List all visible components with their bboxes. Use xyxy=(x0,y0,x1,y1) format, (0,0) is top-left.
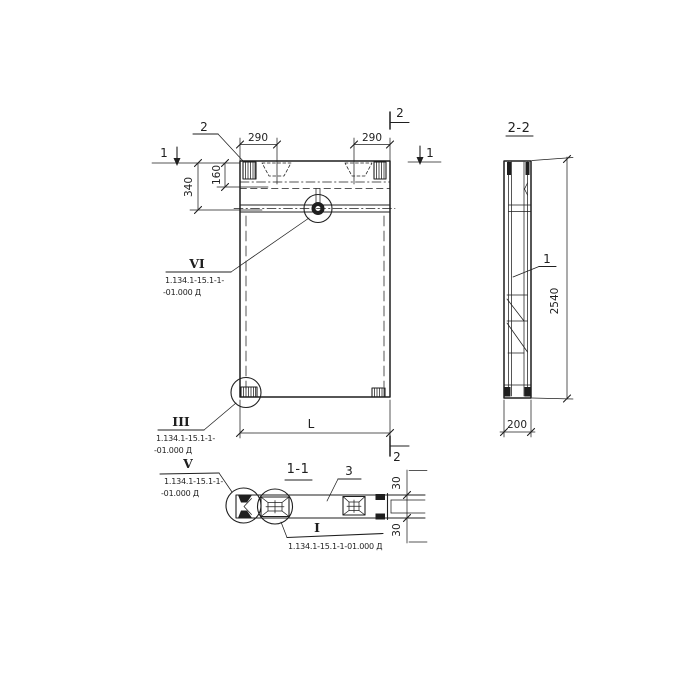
dim-length-label: L xyxy=(308,417,315,431)
leader-detail-2-label: 2 xyxy=(200,120,208,134)
callout-iii-doc2: -01.000 Д xyxy=(154,446,192,455)
svg-text:1-1: 1-1 xyxy=(287,462,310,477)
callout-i-label: I xyxy=(314,520,320,535)
section-2-2-body xyxy=(504,161,531,398)
view-marker-1-right-label: 1 xyxy=(426,146,434,160)
front-view: 290 290 160 340 L xyxy=(152,106,441,464)
leader-detail-1: 1 xyxy=(513,252,556,277)
section-2-2: 2-2 1 2540 xyxy=(500,121,573,437)
callout-v: V 1.134.1-15.1-1- -01.000 Д xyxy=(160,456,232,498)
dim-200: 200 xyxy=(500,400,535,437)
dim-2540-label: 2540 xyxy=(549,288,561,315)
svg-text:2-2: 2-2 xyxy=(508,121,531,136)
dim-2540: 2540 xyxy=(532,156,573,403)
view-marker-1-left-label: 1 xyxy=(160,146,168,160)
section-1-1: 1-1 xyxy=(160,456,427,551)
callout-vi: VI 1.134.1-15.1-1- -01.000 Д xyxy=(163,218,309,297)
view-marker-1-right: 1 xyxy=(408,146,441,165)
dim-30-pair: 30 30 xyxy=(391,470,427,543)
technical-drawing: 290 290 160 340 L xyxy=(0,0,700,700)
section-marker-2-bottom: 2 xyxy=(390,436,409,464)
dim-160-label: 160 xyxy=(211,165,223,185)
embed-plate-top-left-icon xyxy=(243,162,256,179)
callout-i: I 1.134.1-15.1-1-01.000 Д xyxy=(281,520,383,551)
leader-detail-2: 2 xyxy=(193,120,244,162)
callout-v-label: V xyxy=(182,456,193,471)
embed-plate-top-right-icon xyxy=(374,162,386,179)
callout-vi-doc1: 1.134.1-15.1-1- xyxy=(165,276,224,285)
embed-plate-bottom-right-icon xyxy=(372,388,385,397)
panel-outline xyxy=(240,161,390,397)
dim-length-l: L xyxy=(237,400,394,438)
callout-v-doc1: 1.134.1-15.1-1- xyxy=(164,477,223,486)
embed-plate-bottom-left-icon xyxy=(241,387,257,397)
leader-detail-3-label: 3 xyxy=(345,464,353,478)
keyway-b xyxy=(343,497,365,516)
section-marker-2-bottom-label: 2 xyxy=(393,450,401,464)
section-2-2-title: 2-2 xyxy=(506,121,533,136)
top-recess-right xyxy=(345,163,372,176)
callout-iii: III 1.134.1-15.1-1- -01.000 Д xyxy=(154,403,236,455)
section-marker-2-top-label: 2 xyxy=(396,106,404,120)
dim-290-right-label: 290 xyxy=(362,132,382,144)
callout-iii-doc1: 1.134.1-15.1-1- xyxy=(156,434,215,443)
section-1-1-title: 1-1 xyxy=(285,462,312,480)
dim-30-bottom-label: 30 xyxy=(391,523,403,536)
callout-v-doc2: -01.000 Д xyxy=(161,489,199,498)
top-recess-left xyxy=(262,163,291,176)
section-1-1-body xyxy=(236,494,425,520)
dim-340-label: 340 xyxy=(183,177,195,197)
callout-vi-doc2: -01.000 Д xyxy=(163,288,201,297)
callout-i-doc: 1.134.1-15.1-1-01.000 Д xyxy=(288,542,382,551)
section-marker-2-top: 2 xyxy=(390,106,409,129)
right-end-channel xyxy=(376,494,426,520)
keyway-a xyxy=(261,497,289,517)
callout-vi-label: VI xyxy=(188,256,205,271)
dim-290-left-label: 290 xyxy=(248,132,268,144)
dim-200-label: 200 xyxy=(507,419,527,431)
dim-30-top-label: 30 xyxy=(391,476,403,489)
callout-iii-label: III xyxy=(172,414,190,429)
leader-detail-1-label: 1 xyxy=(543,252,551,266)
